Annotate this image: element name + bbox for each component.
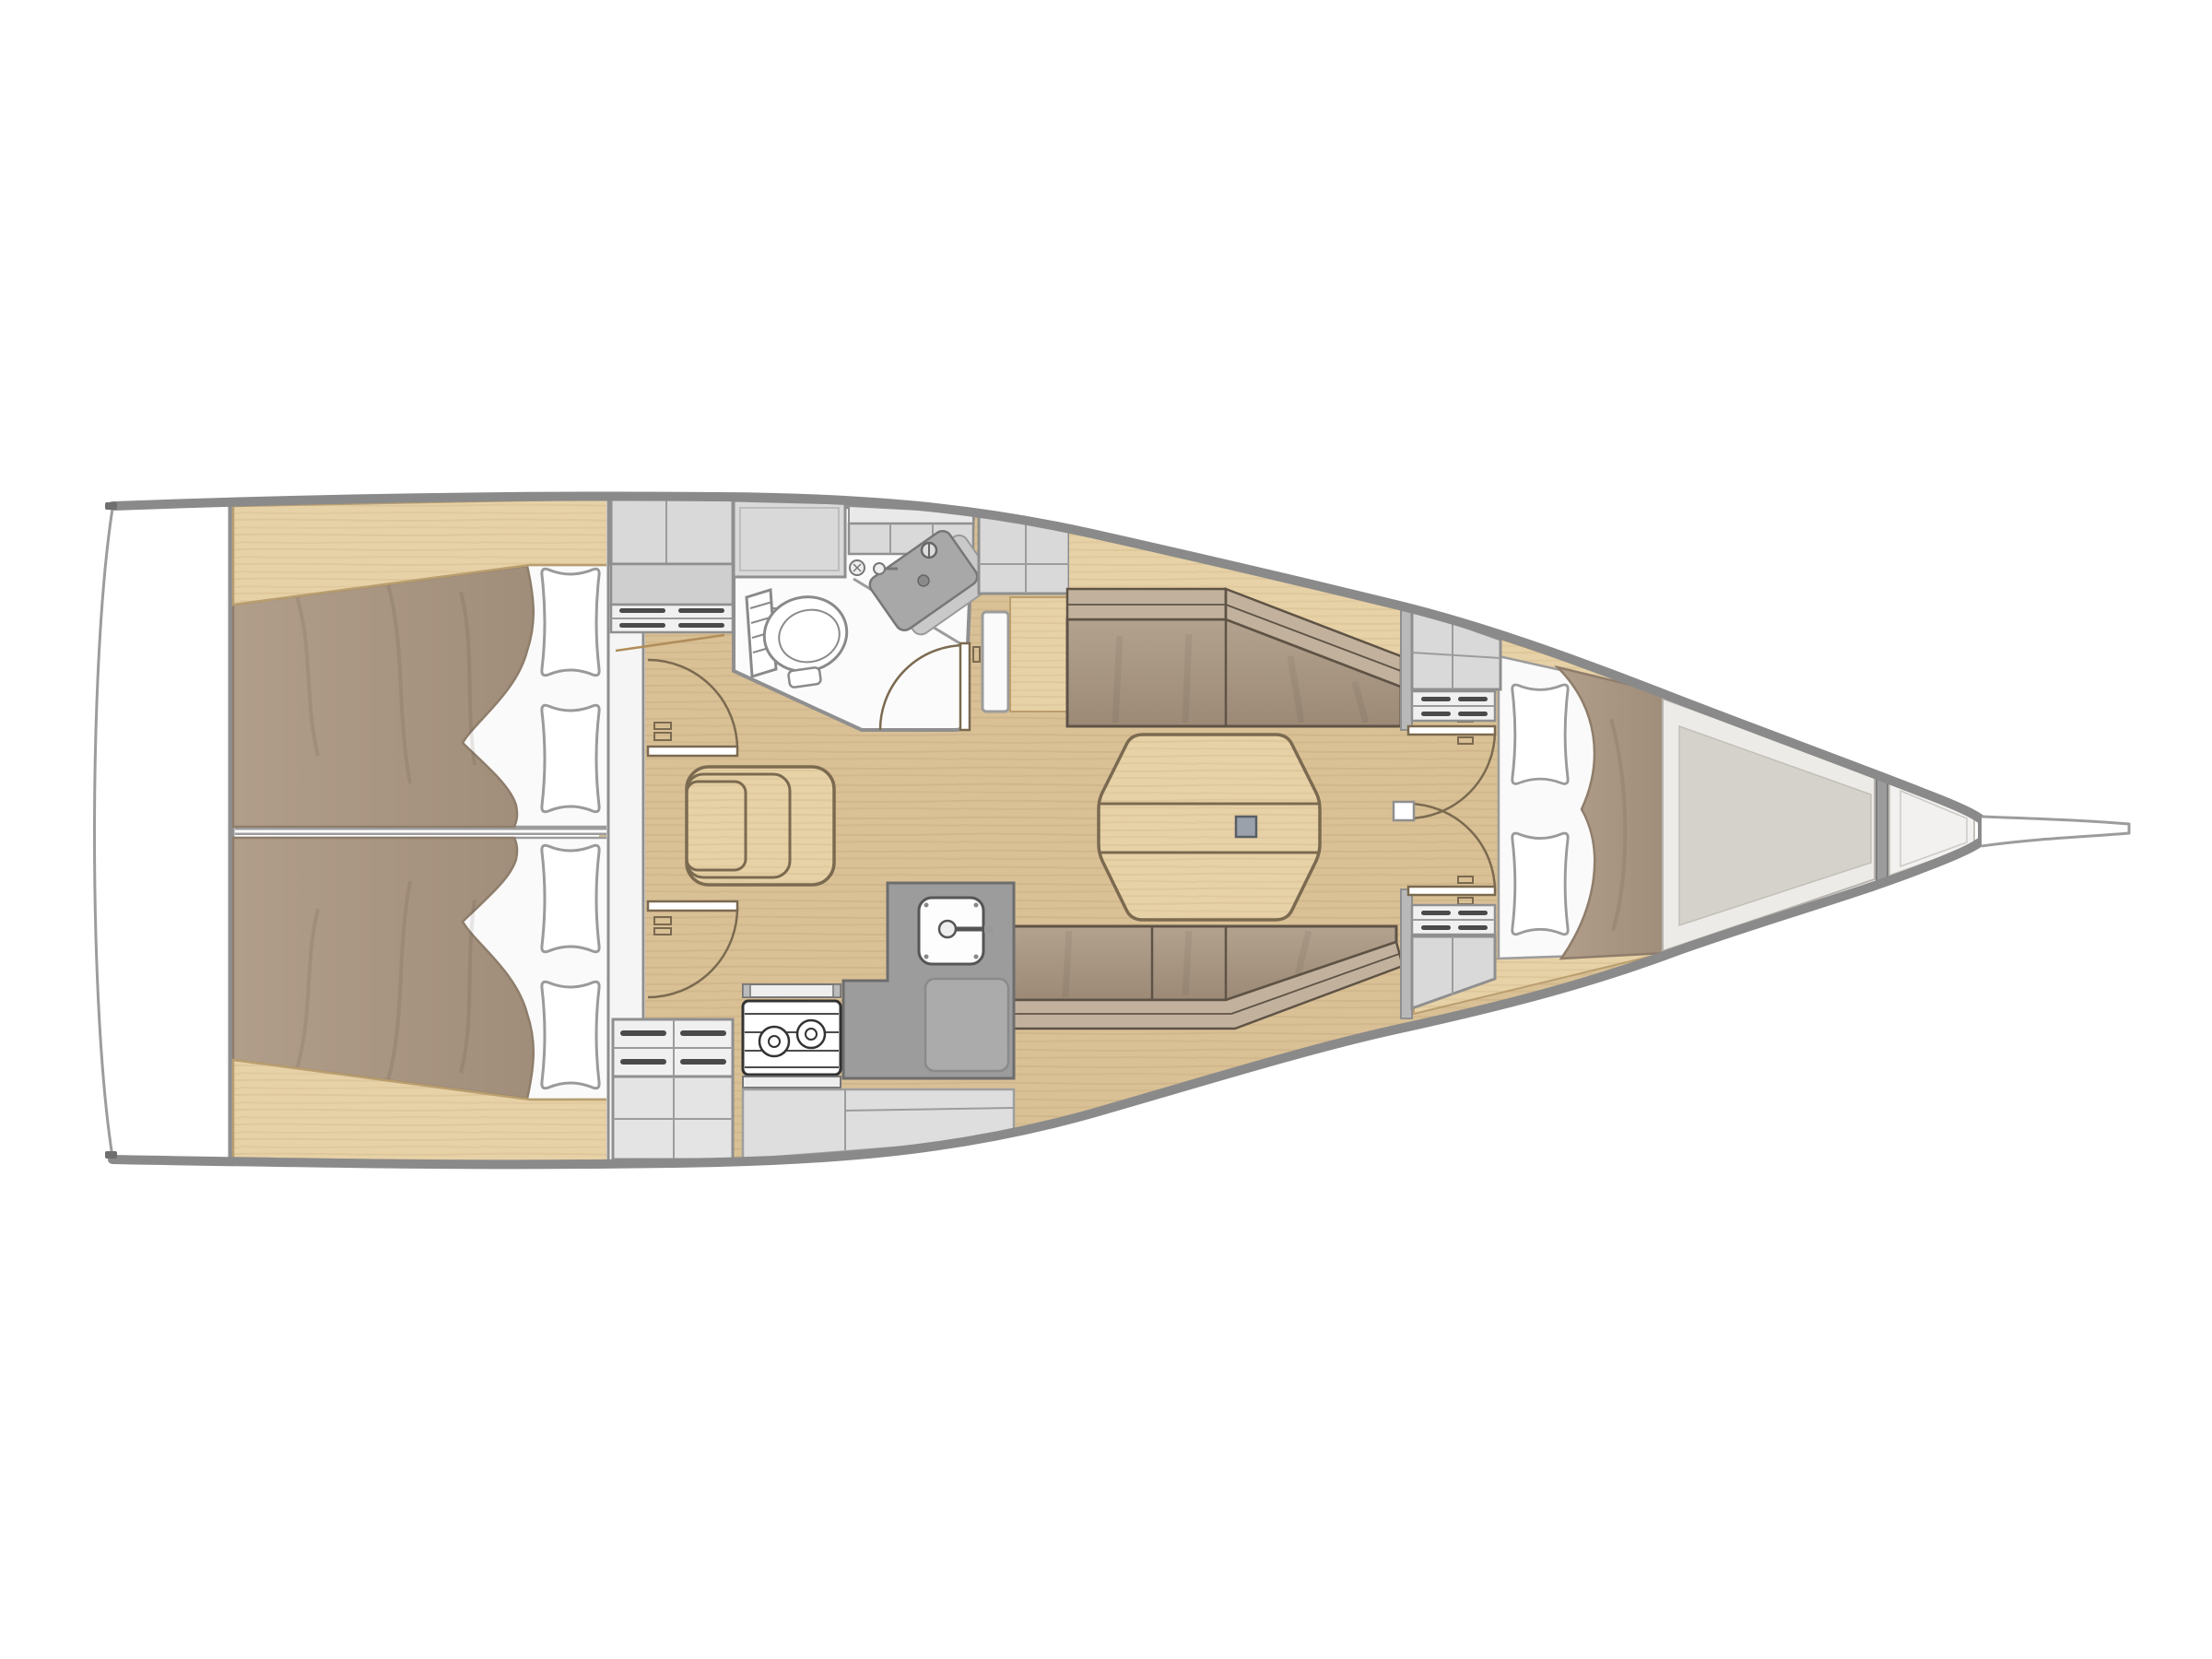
midship-locker-column xyxy=(979,512,1069,712)
galley-sink xyxy=(919,898,994,964)
forward-bulkhead xyxy=(1401,889,1412,1018)
worktop-board xyxy=(925,979,1008,1071)
head-locker xyxy=(734,500,845,577)
faucet xyxy=(939,921,956,937)
two-burner-stove xyxy=(743,984,841,1088)
collision-bulkhead xyxy=(1877,774,1888,881)
pillow xyxy=(1512,833,1568,935)
table-top xyxy=(1099,735,1320,920)
yacht-floor-plan xyxy=(0,0,2212,1659)
pillow xyxy=(1512,685,1568,783)
companionway-lockers-top xyxy=(611,496,733,632)
floor-plan-canvas xyxy=(0,0,2212,1659)
aft-berth-starboard-duvet xyxy=(233,838,534,1099)
aft-cabin-starboard xyxy=(233,838,613,1166)
aft-berth-port-duvet xyxy=(233,566,534,827)
locker-door xyxy=(982,612,1008,712)
transom-fitting xyxy=(105,1151,117,1159)
table-leg xyxy=(1236,817,1256,837)
transom-fitting xyxy=(105,502,117,510)
pillow xyxy=(542,845,599,952)
cabinet-wood xyxy=(1010,597,1069,712)
burner xyxy=(797,1020,825,1048)
pillow xyxy=(542,569,599,676)
pillow xyxy=(542,705,599,812)
aft-cabin-port xyxy=(233,499,613,827)
companionway-steps xyxy=(687,767,834,885)
door-latch-post xyxy=(1394,802,1414,820)
saloon-table xyxy=(1099,735,1320,920)
forward-bulkhead xyxy=(1401,599,1412,730)
galley-outboard-drawers xyxy=(613,1019,733,1159)
burner xyxy=(759,1027,789,1056)
pillow xyxy=(542,982,599,1088)
